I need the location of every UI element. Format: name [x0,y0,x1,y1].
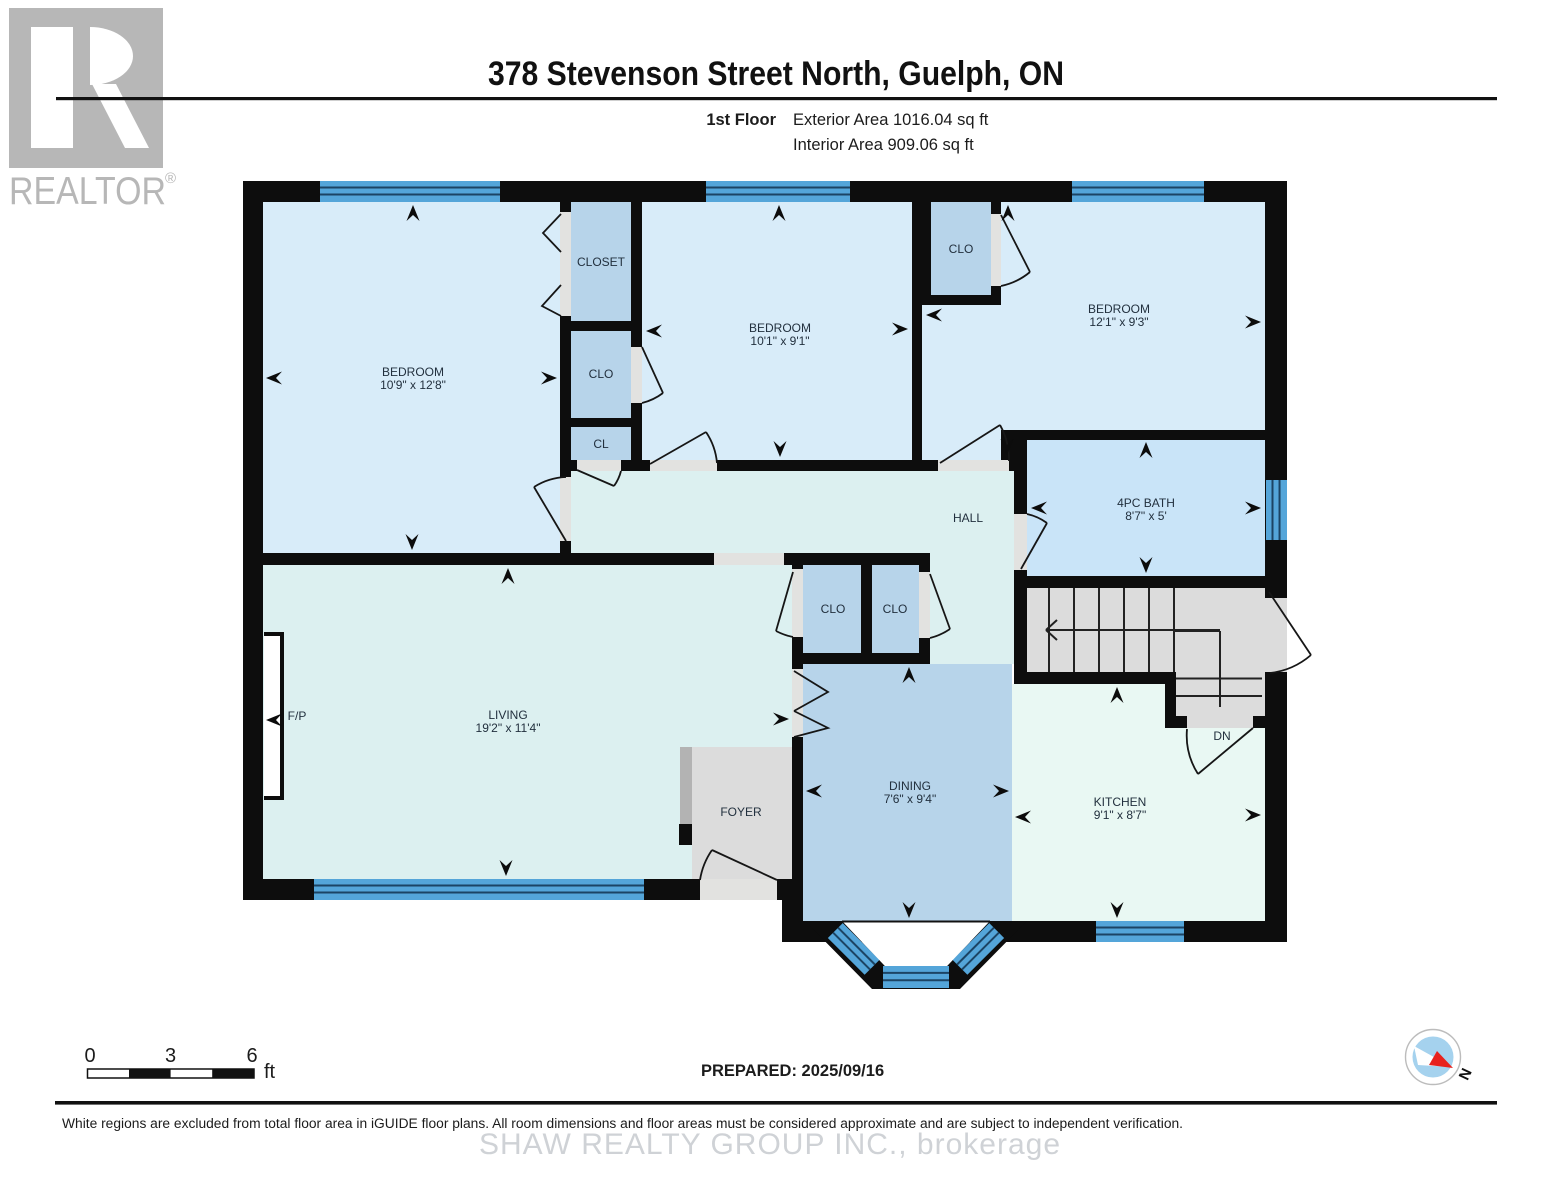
svg-text:9'1" x 8'7": 9'1" x 8'7" [1094,808,1146,822]
svg-text:Exterior Area 1016.04 sq ft: Exterior Area 1016.04 sq ft [793,111,989,129]
svg-text:CLOSET: CLOSET [577,255,626,269]
svg-text:KITCHEN: KITCHEN [1094,795,1147,809]
svg-text:CLO: CLO [589,367,614,381]
svg-text:1st Floor: 1st Floor [706,111,776,129]
svg-text:6: 6 [246,1045,257,1067]
svg-text:DINING: DINING [889,779,931,793]
svg-text:8'7" x 5': 8'7" x 5' [1125,509,1167,523]
svg-text:3: 3 [165,1045,176,1067]
svg-text:19'2" x 11'4": 19'2" x 11'4" [476,721,541,735]
svg-text:10'9" x 12'8": 10'9" x 12'8" [380,378,446,392]
svg-text:BEDROOM: BEDROOM [749,321,811,335]
svg-text:CL: CL [593,437,609,451]
svg-text:FOYER: FOYER [720,805,762,819]
svg-text:CLO: CLO [883,602,908,616]
svg-text:SHAW REALTY GROUP INC., broker: SHAW REALTY GROUP INC., brokerage [479,1128,1061,1161]
svg-text:ft: ft [264,1061,276,1083]
svg-text:PREPARED: 2025/09/16: PREPARED: 2025/09/16 [701,1062,884,1080]
svg-text:®: ® [165,170,176,187]
svg-text:F/P: F/P [288,709,307,723]
svg-text:4PC BATH: 4PC BATH [1117,496,1175,510]
svg-text:HALL: HALL [953,511,983,525]
svg-text:BEDROOM: BEDROOM [1088,302,1150,316]
svg-text:10'1" x 9'1": 10'1" x 9'1" [750,334,809,348]
svg-text:REALTOR: REALTOR [9,170,166,213]
svg-text:Interior Area 909.06 sq ft: Interior Area 909.06 sq ft [793,136,974,154]
svg-text:378 Stevenson Street North, Gu: 378 Stevenson Street North, Guelph, ON [488,55,1064,93]
svg-text:BEDROOM: BEDROOM [382,365,444,379]
svg-text:LIVING: LIVING [488,708,527,722]
svg-text:12'1" x 9'3": 12'1" x 9'3" [1089,315,1148,329]
svg-text:CLO: CLO [949,242,974,256]
svg-text:0: 0 [84,1045,95,1067]
svg-text:CLO: CLO [821,602,846,616]
svg-text:DN: DN [1213,729,1230,743]
svg-text:7'6" x 9'4": 7'6" x 9'4" [884,792,936,806]
